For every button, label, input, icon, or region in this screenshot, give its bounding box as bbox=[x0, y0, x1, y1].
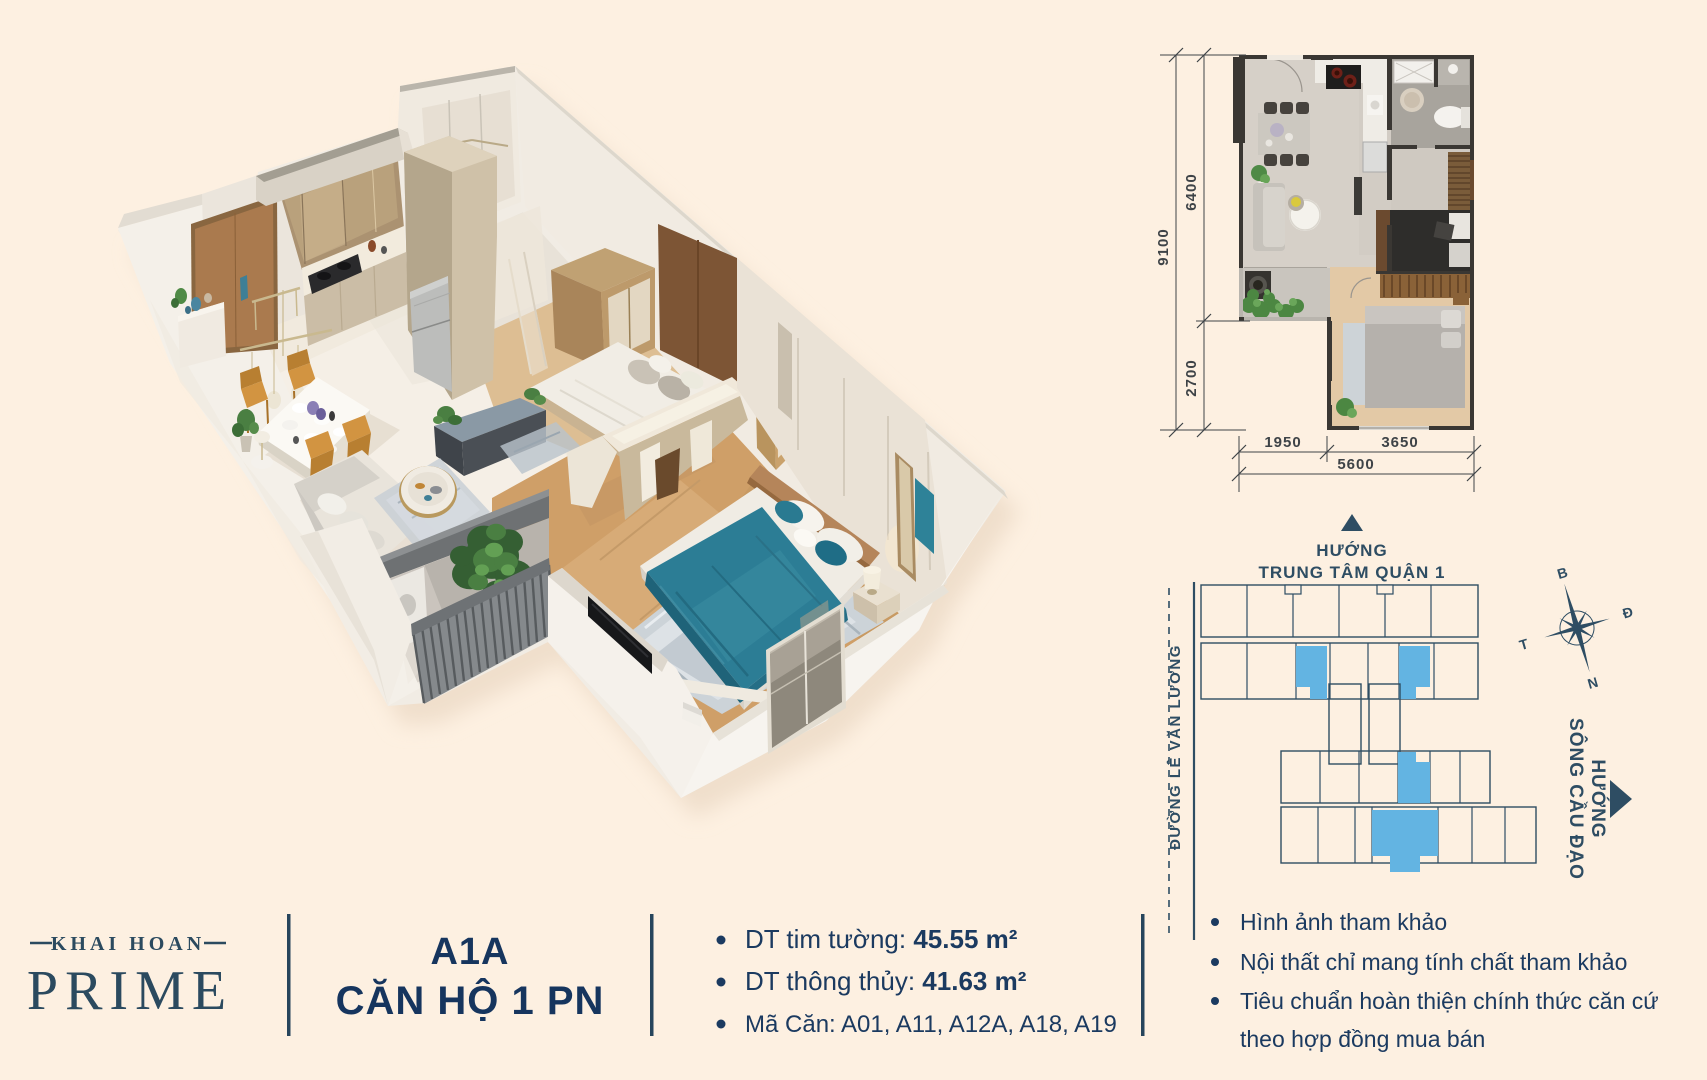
svg-text:theo hợp đồng mua bán: theo hợp đồng mua bán bbox=[1240, 1026, 1485, 1052]
svg-text:3650: 3650 bbox=[1381, 434, 1418, 451]
svg-text:9100: 9100 bbox=[1155, 228, 1172, 265]
svg-text:DT tim tường: 45.55 m²: DT tim tường: 45.55 m² bbox=[745, 924, 1018, 954]
svg-text:1950: 1950 bbox=[1264, 434, 1301, 451]
svg-text:KHAI HOAN: KHAI HOAN bbox=[51, 933, 205, 955]
svg-text:HƯỚNG: HƯỚNG bbox=[1587, 759, 1609, 838]
svg-text:CĂN HỘ 1 PN: CĂN HỘ 1 PN bbox=[336, 977, 605, 1023]
svg-text:A1A: A1A bbox=[430, 931, 509, 973]
svg-text:Tiêu chuẩn hoàn thiện chính th: Tiêu chuẩn hoàn thiện chính thức căn cứ bbox=[1240, 988, 1659, 1014]
svg-text:HƯỚNG: HƯỚNG bbox=[1316, 541, 1387, 560]
svg-text:2700: 2700 bbox=[1183, 359, 1200, 396]
svg-text:Hình ảnh tham khảo: Hình ảnh tham khảo bbox=[1240, 909, 1447, 935]
svg-text:SÔNG CẦU ĐẠO: SÔNG CẦU ĐẠO bbox=[1565, 718, 1587, 880]
svg-text:TRUNG TÂM QUẬN 1: TRUNG TÂM QUẬN 1 bbox=[1259, 563, 1446, 582]
svg-text:Mã Căn: A01, A11, A12A, A18, A: Mã Căn: A01, A11, A12A, A18, A19 bbox=[745, 1011, 1117, 1038]
svg-text:Nội thất chỉ mang tính chất th: Nội thất chỉ mang tính chất tham khảo bbox=[1240, 949, 1627, 975]
svg-text:5600: 5600 bbox=[1337, 456, 1374, 473]
svg-text:ĐƯỜNG LÊ VĂN LƯƠNG: ĐƯỜNG LÊ VĂN LƯƠNG bbox=[1166, 644, 1184, 850]
svg-text:6400: 6400 bbox=[1183, 173, 1200, 210]
svg-text:DT thông thủy: 41.63 m²: DT thông thủy: 41.63 m² bbox=[745, 966, 1027, 996]
svg-text:PRIME: PRIME bbox=[27, 960, 233, 1022]
